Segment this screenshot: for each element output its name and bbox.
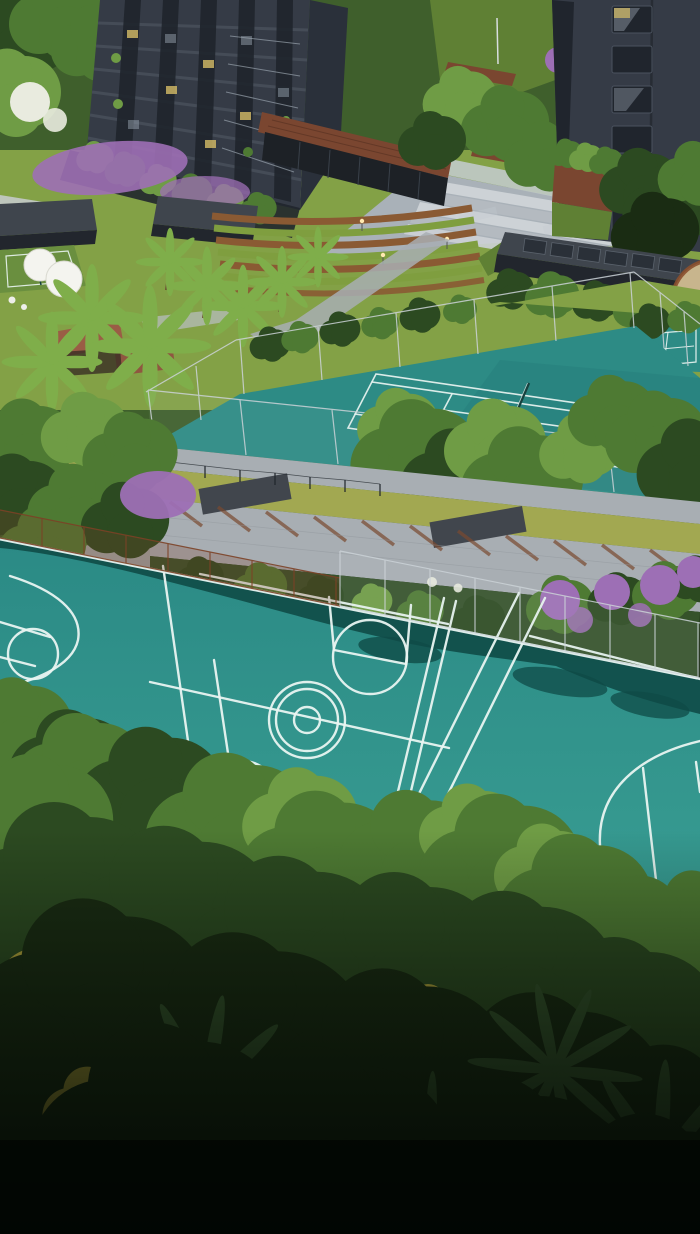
light-pole xyxy=(497,18,498,64)
purple-bush xyxy=(120,471,196,519)
white-flower-tree xyxy=(43,108,67,132)
palm xyxy=(89,285,211,407)
palm xyxy=(287,226,348,287)
aerial-render xyxy=(0,0,700,1234)
table xyxy=(21,304,27,310)
table xyxy=(9,297,16,304)
vignette-bottom xyxy=(0,1140,700,1234)
